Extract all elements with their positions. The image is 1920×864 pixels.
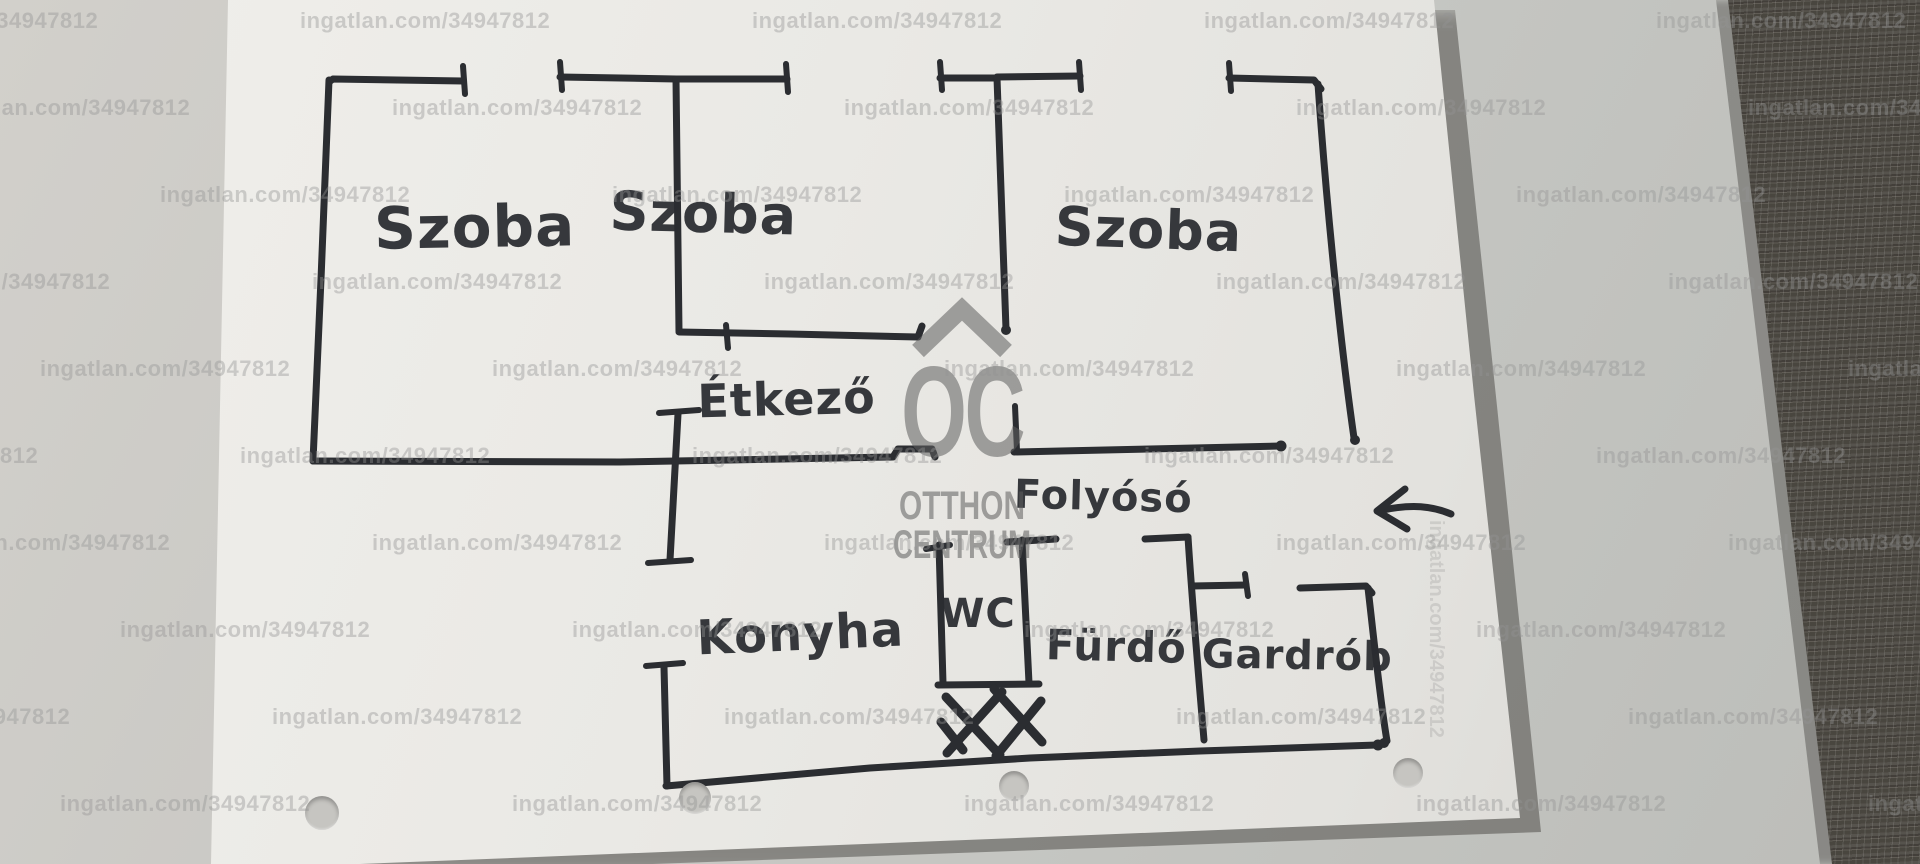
- wall-end-blob: [1350, 435, 1360, 445]
- wall-etkezo-bottom: [313, 449, 935, 462]
- room-label-folyoso: Folyósó: [1013, 472, 1193, 523]
- hatch-shaft: [941, 689, 1042, 756]
- photo-floorplan: Szoba Szoba Szoba Étkező Folyósó Konyha …: [0, 0, 1920, 864]
- wall-szoba1-left: [313, 80, 329, 461]
- logo-monogram: OC: [901, 341, 1023, 484]
- floor-plan-drawing: Szoba Szoba Szoba Étkező Folyósó Konyha …: [0, 0, 1920, 864]
- wall-gardrob-top-b: [1300, 586, 1372, 593]
- agency-logo: OC OTTHON CENTRUM: [893, 309, 1031, 567]
- wall-wc-bottom: [938, 684, 1039, 685]
- window-tick: [1079, 62, 1081, 90]
- wall-end-blob: [1276, 441, 1287, 452]
- wall-szoba3-right: [1318, 84, 1354, 438]
- logo-line2: CENTRUM: [893, 523, 1031, 567]
- wall-szoba1-top-b: [560, 77, 676, 79]
- wall-szoba2-bottom: [679, 326, 922, 337]
- room-label-furdo: Fürdő: [1045, 620, 1187, 673]
- punch-hole: [679, 782, 711, 814]
- wall-furdo-top: [1145, 537, 1188, 539]
- room-label-konyha: Konyha: [695, 602, 905, 667]
- wall-end-blob: [1379, 738, 1389, 748]
- wall-folyoso-top: [1014, 446, 1280, 452]
- wall-tick: [1245, 574, 1248, 596]
- punch-hole: [1393, 758, 1423, 788]
- punch-hole: [305, 796, 339, 830]
- window-tick: [463, 66, 465, 94]
- watermark-text-vertical: ingatlan.com/34947812: [1424, 520, 1447, 738]
- wall-szoba3-top-a: [997, 76, 1080, 77]
- window-tick: [786, 64, 788, 92]
- room-label-gardrob: Gardrób: [1201, 631, 1393, 680]
- logo-line1: OTTHON: [899, 484, 1025, 528]
- wall-szoba3-top-b: [1229, 78, 1321, 89]
- room-label-szoba-2: Szoba: [609, 180, 798, 248]
- room-label-etkezo: Étkező: [697, 370, 877, 429]
- wall-etkezo-konyha-divider: [670, 414, 678, 560]
- wall-divider-szoba2-szoba3: [997, 78, 1006, 329]
- punch-hole: [999, 771, 1029, 801]
- wall-gardrob-top-a: [1192, 585, 1246, 586]
- wall-tick: [648, 560, 691, 563]
- wall-konyha-left: [664, 667, 667, 786]
- wall-szoba1-top-a: [329, 79, 463, 82]
- wall-tick: [726, 325, 728, 348]
- room-label-szoba-3: Szoba: [1054, 195, 1244, 265]
- room-label-szoba-1: Szoba: [374, 191, 576, 262]
- room-label-wc: WC: [940, 591, 1015, 637]
- wall-end-blob: [1001, 325, 1011, 335]
